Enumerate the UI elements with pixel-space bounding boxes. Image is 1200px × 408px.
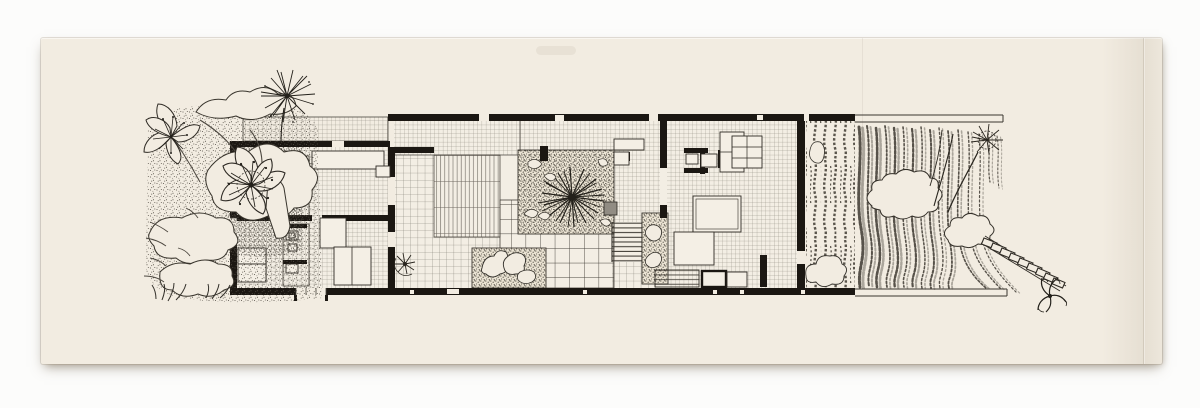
accent-gray-square bbox=[604, 202, 617, 215]
east-walled-garden bbox=[806, 121, 855, 288]
lower-planted-bed bbox=[472, 248, 546, 288]
scan-background bbox=[0, 0, 1200, 408]
floor-plan-drawing bbox=[0, 0, 1200, 408]
courtyard-planted-bed bbox=[518, 150, 614, 234]
stair-run bbox=[612, 222, 642, 262]
